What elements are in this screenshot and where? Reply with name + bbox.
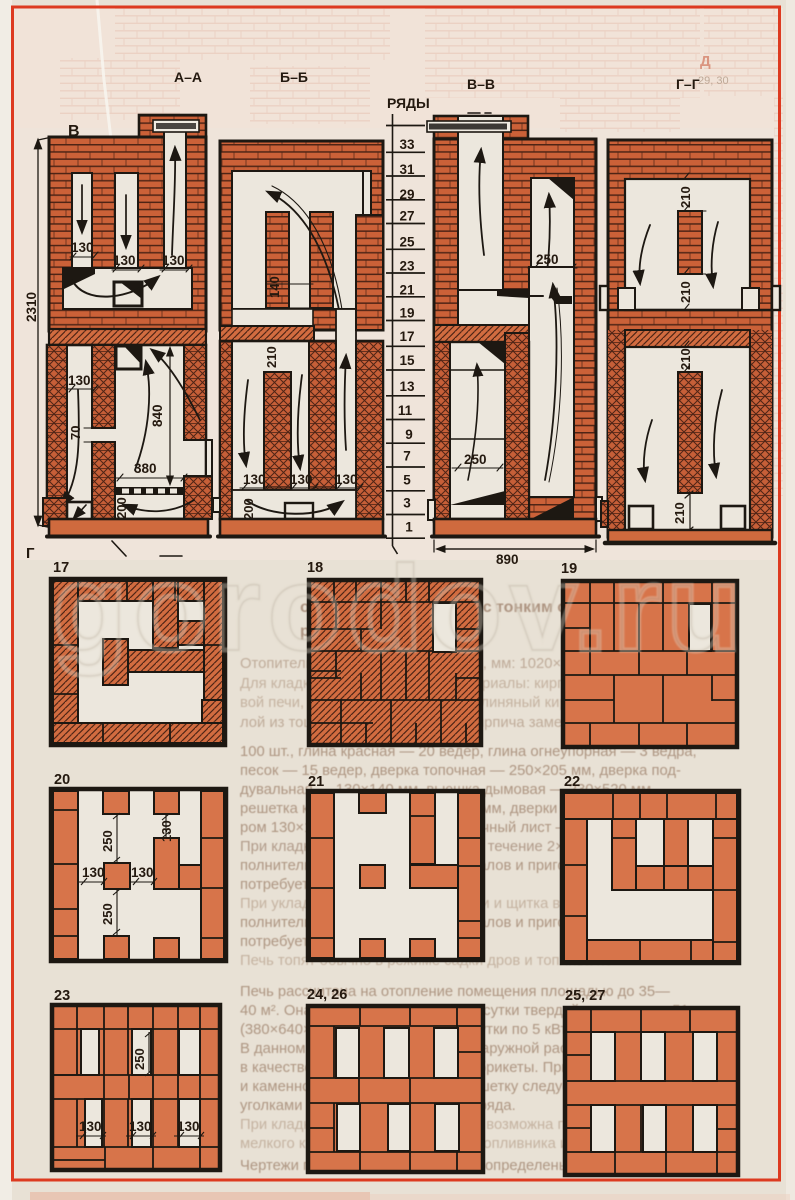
svg-text:200: 200 bbox=[241, 498, 256, 520]
svg-text:19: 19 bbox=[399, 305, 414, 320]
svg-text:130: 130 bbox=[82, 865, 105, 880]
svg-text:130: 130 bbox=[129, 1119, 152, 1134]
svg-text:250: 250 bbox=[100, 830, 115, 852]
svg-text:23: 23 bbox=[54, 988, 70, 1004]
svg-text:В–В: В–В bbox=[467, 76, 495, 92]
svg-text:20: 20 bbox=[54, 772, 70, 788]
svg-text:Д: Д bbox=[700, 53, 711, 70]
svg-text:210: 210 bbox=[678, 186, 693, 208]
svg-text:250: 250 bbox=[132, 1048, 147, 1070]
svg-text:29, 30: 29, 30 bbox=[698, 75, 729, 87]
svg-text:250: 250 bbox=[464, 452, 487, 467]
svg-text:840: 840 bbox=[150, 404, 165, 427]
svg-text:7: 7 bbox=[403, 449, 411, 464]
svg-text:200: 200 bbox=[114, 497, 129, 519]
svg-text:250: 250 bbox=[536, 252, 559, 267]
svg-text:2310: 2310 bbox=[24, 292, 39, 322]
svg-text:130: 130 bbox=[79, 1119, 102, 1134]
svg-text:22: 22 bbox=[564, 774, 580, 790]
svg-text:140: 140 bbox=[267, 276, 282, 298]
svg-text:Г–Г: Г–Г bbox=[676, 76, 700, 92]
svg-text:25: 25 bbox=[399, 235, 415, 250]
svg-text:15: 15 bbox=[399, 353, 415, 368]
svg-text:17: 17 bbox=[399, 329, 414, 344]
svg-text:130: 130 bbox=[335, 472, 358, 487]
svg-text:210: 210 bbox=[678, 281, 693, 303]
svg-text:5: 5 bbox=[403, 473, 411, 488]
svg-text:130: 130 bbox=[71, 240, 94, 255]
svg-text:210: 210 bbox=[264, 346, 279, 368]
svg-text:130: 130 bbox=[162, 253, 185, 268]
svg-text:21: 21 bbox=[399, 282, 415, 297]
svg-text:24, 26: 24, 26 bbox=[307, 987, 347, 1003]
svg-text:33: 33 bbox=[399, 137, 415, 152]
svg-text:А–А: А–А bbox=[174, 69, 202, 85]
svg-text:250: 250 bbox=[100, 903, 115, 925]
svg-text:23: 23 bbox=[399, 259, 415, 274]
svg-text:130: 130 bbox=[68, 373, 91, 388]
svg-text:210: 210 bbox=[678, 348, 693, 370]
svg-text:песок — 15 ведер, дверка топоч: песок — 15 ведер, дверка топочная — 250×… bbox=[240, 763, 681, 779]
svg-text:1: 1 bbox=[405, 519, 413, 534]
svg-text:130: 130 bbox=[177, 1119, 200, 1134]
svg-text:70: 70 bbox=[68, 426, 83, 440]
svg-text:РЯДЫ: РЯДЫ bbox=[387, 95, 430, 111]
svg-text:gorodov.ru: gorodov.ru bbox=[53, 540, 748, 676]
svg-text:9: 9 bbox=[405, 427, 413, 442]
svg-text:13: 13 bbox=[399, 379, 415, 394]
svg-text:130: 130 bbox=[113, 253, 136, 268]
svg-text:130: 130 bbox=[290, 472, 313, 487]
svg-text:27: 27 bbox=[399, 209, 414, 224]
svg-text:11: 11 bbox=[398, 403, 413, 418]
svg-text:Б–Б: Б–Б bbox=[280, 69, 308, 85]
svg-text:Печь рассчитана на отопление п: Печь рассчитана на отопление помещения п… bbox=[240, 984, 670, 1000]
svg-text:Г: Г bbox=[26, 545, 35, 562]
svg-text:130: 130 bbox=[131, 865, 154, 880]
svg-text:210: 210 bbox=[672, 502, 687, 524]
svg-text:31: 31 bbox=[399, 162, 415, 177]
svg-text:25, 27: 25, 27 bbox=[565, 988, 605, 1004]
svg-text:3: 3 bbox=[403, 496, 411, 511]
svg-text:21: 21 bbox=[308, 774, 324, 790]
svg-text:29: 29 bbox=[399, 187, 414, 202]
